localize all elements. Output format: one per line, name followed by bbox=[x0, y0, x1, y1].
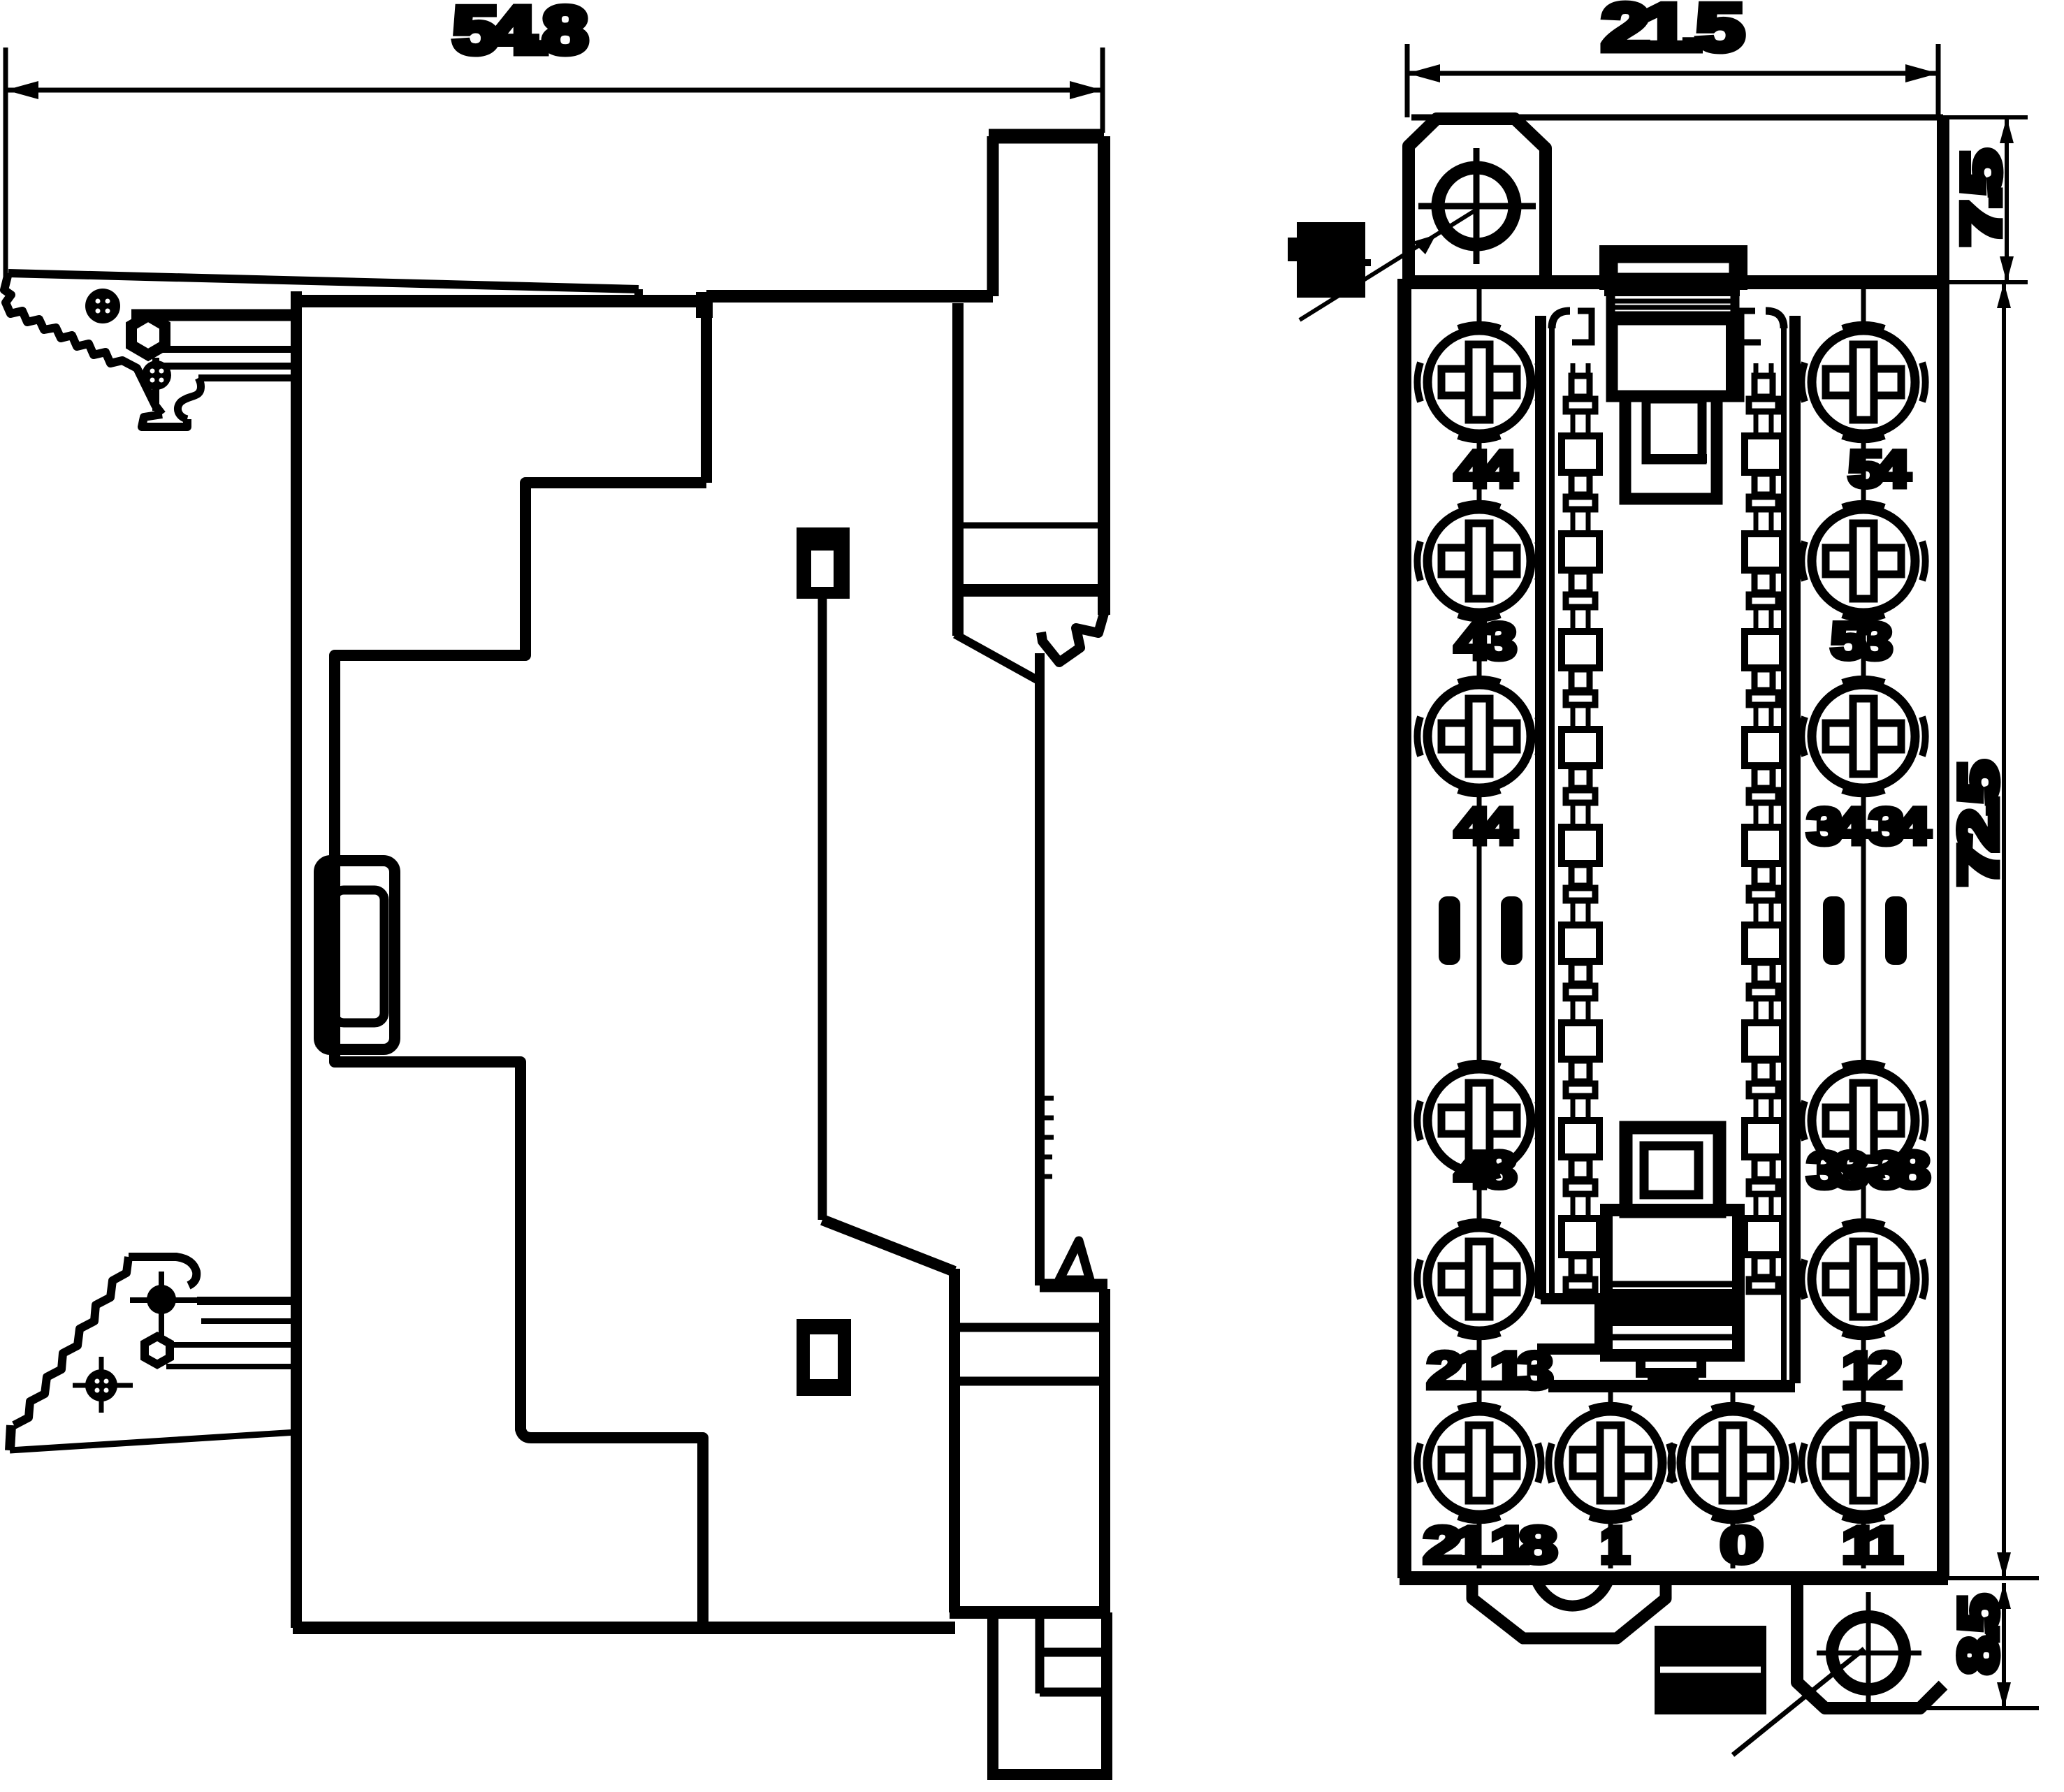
svg-text:48: 48 bbox=[1455, 1141, 1515, 1199]
svg-text:44: 44 bbox=[1455, 797, 1517, 855]
svg-text:44: 44 bbox=[1455, 440, 1517, 498]
svg-text:8.5: 8.5 bbox=[1947, 1596, 2009, 1674]
svg-text:21 18: 21 18 bbox=[1423, 1516, 1555, 1574]
svg-text:54: 54 bbox=[1848, 440, 1910, 498]
svg-text:21 13: 21 13 bbox=[1427, 1341, 1551, 1399]
svg-text:12: 12 bbox=[1842, 1341, 1901, 1399]
svg-text:21.5: 21.5 bbox=[1601, 0, 1742, 65]
svg-text:11: 11 bbox=[1842, 1516, 1902, 1574]
svg-text:7.5: 7.5 bbox=[1950, 151, 2012, 246]
svg-text:54.8: 54.8 bbox=[453, 0, 586, 68]
svg-text:34 34: 34 34 bbox=[1807, 797, 1931, 855]
svg-text:53: 53 bbox=[1831, 612, 1891, 670]
svg-text:72.5: 72.5 bbox=[1947, 762, 2009, 886]
svg-text:33 38: 33 38 bbox=[1807, 1141, 1928, 1199]
svg-text:43: 43 bbox=[1455, 612, 1515, 670]
